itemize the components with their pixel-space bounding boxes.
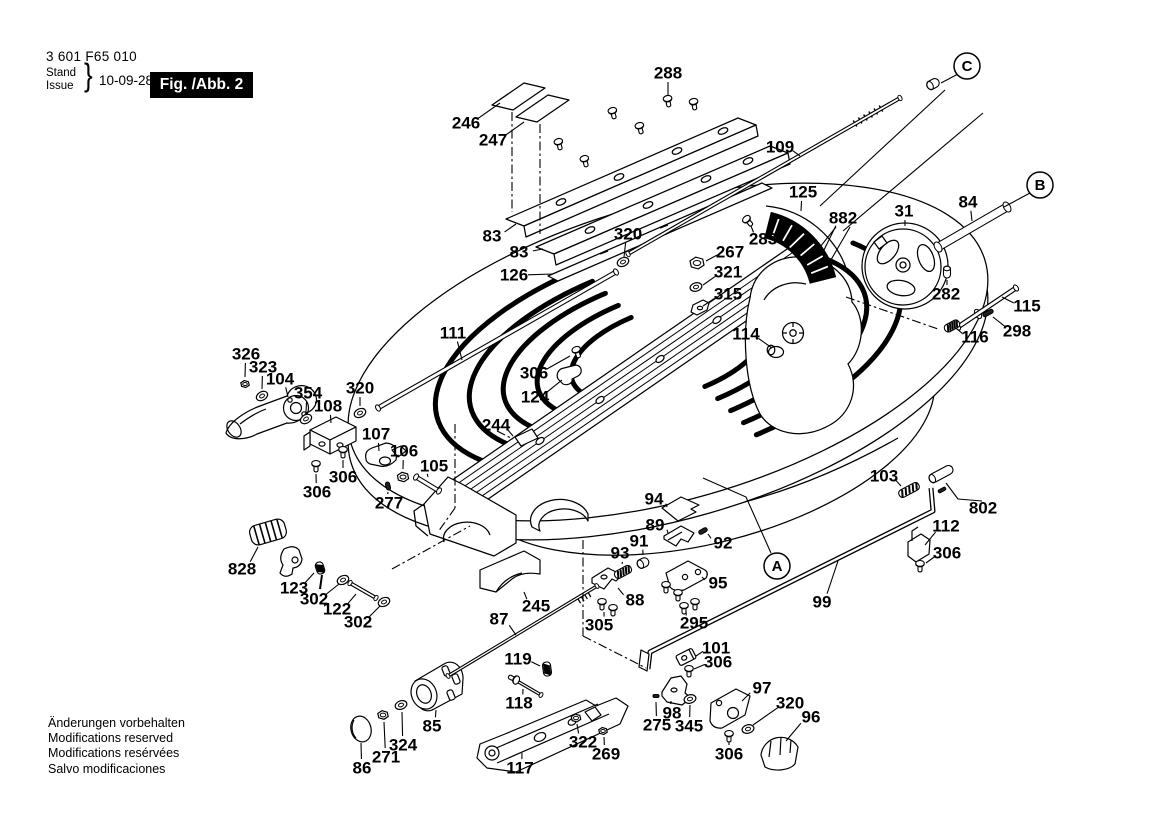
washer-part bbox=[394, 699, 408, 711]
part-label-246: 246 bbox=[452, 114, 480, 133]
screw-part bbox=[609, 605, 618, 616]
screw-part bbox=[680, 603, 689, 614]
nut-part bbox=[599, 728, 607, 735]
leader-line bbox=[505, 224, 516, 232]
part-label-267: 267 bbox=[716, 243, 744, 262]
part-label-277: 277 bbox=[375, 494, 403, 513]
bracket-828b bbox=[280, 547, 302, 577]
nut-part bbox=[241, 381, 249, 388]
part-label-93: 93 bbox=[611, 544, 630, 563]
part-label-31: 31 bbox=[895, 202, 914, 221]
callout-leader bbox=[1004, 193, 1030, 207]
screw-part bbox=[663, 95, 673, 108]
nut-part bbox=[571, 714, 580, 722]
part-label-83: 83 bbox=[483, 227, 502, 246]
part-label-88: 88 bbox=[626, 591, 645, 610]
leader-line bbox=[330, 415, 331, 423]
part-label-85: 85 bbox=[423, 717, 442, 736]
screw-part bbox=[685, 666, 694, 677]
pin-part bbox=[938, 487, 946, 493]
screw-part bbox=[725, 731, 734, 742]
leader-line bbox=[827, 561, 838, 594]
view-callout-label-A: A bbox=[772, 558, 783, 575]
pin-part bbox=[653, 695, 659, 698]
part-label-96: 96 bbox=[802, 708, 821, 727]
part-label-112: 112 bbox=[932, 517, 959, 536]
screw-part bbox=[598, 599, 607, 610]
part-label-306: 306 bbox=[303, 483, 331, 502]
leader-line bbox=[306, 402, 307, 412]
pin-part bbox=[944, 266, 951, 278]
part-label-271: 271 bbox=[372, 748, 400, 767]
screw-part bbox=[674, 590, 683, 601]
part-label-126: 126 bbox=[500, 266, 528, 285]
button-828 bbox=[248, 517, 288, 546]
part-label-320: 320 bbox=[614, 225, 642, 244]
part-label-882: 882 bbox=[829, 209, 857, 228]
nut-part bbox=[378, 711, 388, 720]
screw-part bbox=[553, 138, 564, 151]
leader-line bbox=[1002, 297, 1014, 303]
part-label-87: 87 bbox=[490, 610, 509, 629]
leader-line bbox=[618, 588, 624, 595]
part-label-320: 320 bbox=[776, 694, 804, 713]
part-label-105: 105 bbox=[420, 457, 448, 476]
leader-line bbox=[384, 722, 385, 748]
part-label-315: 315 bbox=[714, 285, 742, 304]
clip-101 bbox=[675, 648, 696, 666]
pin-part bbox=[925, 77, 941, 91]
screw-part bbox=[607, 107, 618, 120]
part-label-320: 320 bbox=[346, 379, 374, 398]
part-label-245: 245 bbox=[522, 597, 550, 616]
part-label-269: 269 bbox=[592, 745, 620, 764]
callout-leader bbox=[941, 74, 958, 83]
part-label-119: 119 bbox=[504, 650, 531, 669]
view-callout-label-C: C bbox=[962, 58, 973, 75]
pointer-housing bbox=[745, 257, 861, 434]
part-label-106: 106 bbox=[390, 442, 418, 461]
leader-line bbox=[786, 723, 801, 741]
note-fr: Modifications resérvées bbox=[48, 746, 185, 761]
screw-part bbox=[339, 447, 348, 458]
leader-line bbox=[801, 201, 802, 211]
part-label-84: 84 bbox=[959, 193, 978, 212]
part-label-247: 247 bbox=[479, 131, 507, 150]
part-label-118: 118 bbox=[505, 694, 532, 713]
part-label-109: 109 bbox=[766, 138, 794, 157]
part-label-306: 306 bbox=[933, 544, 961, 563]
part-label-275: 275 bbox=[643, 716, 671, 735]
part-label-116: 116 bbox=[961, 328, 988, 347]
part-label-108: 108 bbox=[314, 397, 342, 416]
part-label-115: 115 bbox=[1013, 297, 1040, 316]
spring-part bbox=[314, 561, 325, 575]
part-label-321: 321 bbox=[714, 263, 742, 282]
part-label-104: 104 bbox=[266, 370, 295, 389]
pin-part bbox=[927, 464, 954, 484]
part-label-306: 306 bbox=[704, 653, 732, 672]
washer-part bbox=[741, 723, 755, 734]
part-label-244: 244 bbox=[482, 416, 511, 435]
spring-part bbox=[542, 662, 552, 677]
part-label-95: 95 bbox=[709, 574, 728, 593]
part-label-97: 97 bbox=[753, 679, 772, 698]
screw-part bbox=[634, 122, 645, 135]
leader-line bbox=[402, 712, 403, 736]
guide-line bbox=[583, 636, 646, 668]
part-label-282: 282 bbox=[932, 285, 960, 304]
note-es: Salvo modificaciones bbox=[48, 762, 185, 777]
leader-line bbox=[971, 211, 972, 221]
parts-diagram-page: 3 601 F65 010 Stand Issue } 10-09-28 Fig… bbox=[0, 0, 1169, 826]
part-label-114: 114 bbox=[732, 325, 760, 344]
nut-part bbox=[397, 472, 408, 481]
screw-part bbox=[312, 461, 321, 472]
note-de: Änderungen vorbehalten bbox=[48, 716, 185, 731]
part-label-306: 306 bbox=[520, 364, 548, 383]
part-label-283: 283 bbox=[749, 230, 777, 249]
view-callout-label-B: B bbox=[1035, 177, 1046, 194]
exploded-parts-diagram: 2882462478383126320109125882283267321315… bbox=[0, 0, 1169, 826]
part-label-302: 302 bbox=[344, 613, 372, 632]
note-en: Modifications reserved bbox=[48, 731, 185, 746]
part-label-117: 117 bbox=[506, 759, 533, 778]
spring-part bbox=[613, 564, 633, 580]
part-label-103: 103 bbox=[870, 467, 898, 486]
part-label-828: 828 bbox=[228, 560, 256, 579]
leader-line bbox=[531, 662, 540, 666]
leader-line bbox=[378, 443, 379, 451]
part-label-125: 125 bbox=[789, 183, 817, 202]
part-label-107: 107 bbox=[362, 425, 390, 444]
leader-line bbox=[753, 708, 778, 725]
washer-part bbox=[255, 389, 270, 402]
screw-part bbox=[916, 561, 925, 572]
tag-245 bbox=[480, 551, 540, 592]
part-label-305: 305 bbox=[585, 616, 613, 635]
spring-part bbox=[897, 481, 920, 498]
screw-part bbox=[662, 582, 671, 593]
part-label-94: 94 bbox=[645, 490, 664, 509]
part-label-91: 91 bbox=[630, 532, 649, 551]
screw-part bbox=[579, 155, 590, 168]
block-112 bbox=[908, 534, 930, 562]
part-label-306: 306 bbox=[329, 468, 357, 487]
part-label-83: 83 bbox=[510, 243, 529, 262]
part-label-124: 124 bbox=[521, 388, 550, 407]
part-label-111: 111 bbox=[440, 324, 467, 343]
nut-part bbox=[690, 257, 704, 269]
part-label-295: 295 bbox=[680, 614, 708, 633]
part-label-86: 86 bbox=[353, 759, 372, 778]
part-label-99: 99 bbox=[813, 593, 832, 612]
leader-line bbox=[478, 103, 500, 118]
leader-line bbox=[528, 274, 553, 275]
screw-part bbox=[691, 599, 700, 610]
part-label-288: 288 bbox=[654, 64, 682, 83]
part-label-92: 92 bbox=[714, 534, 733, 553]
pin-123 bbox=[320, 575, 322, 589]
leader-line bbox=[509, 625, 516, 635]
pin-part bbox=[636, 556, 651, 569]
revision-notes: Änderungen vorbehalten Modifications res… bbox=[48, 716, 185, 777]
part-label-298: 298 bbox=[1003, 322, 1031, 341]
part-label-345: 345 bbox=[675, 717, 703, 736]
part-label-306: 306 bbox=[715, 745, 743, 764]
screw-part bbox=[689, 98, 699, 111]
leader-line bbox=[505, 122, 524, 135]
part-label-802: 802 bbox=[969, 499, 997, 518]
